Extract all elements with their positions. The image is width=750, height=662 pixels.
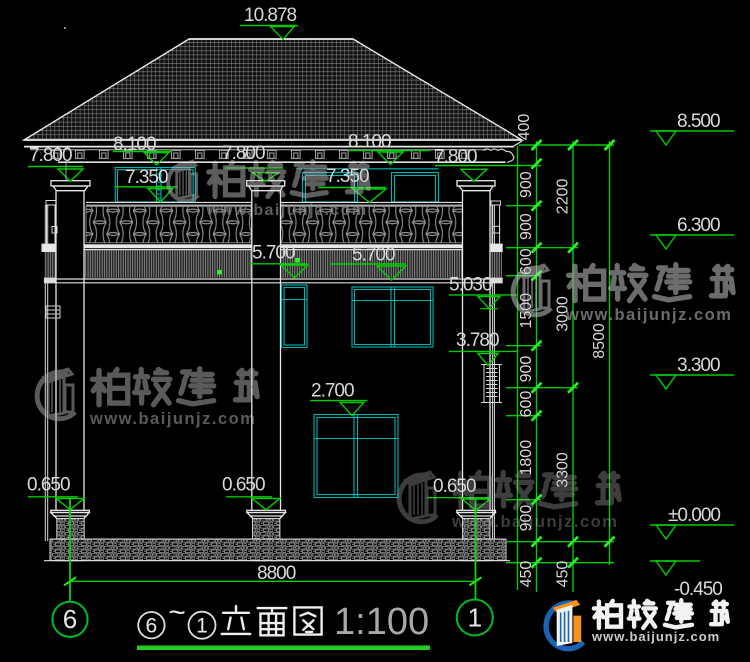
svg-text:900: 900: [518, 171, 535, 198]
svg-text:5.700: 5.700: [352, 245, 395, 266]
svg-text:±0.000: ±0.000: [668, 505, 720, 526]
svg-text:www.baijunjz.com: www.baijunjz.com: [591, 629, 720, 644]
svg-text:450: 450: [518, 561, 535, 588]
svg-text:8.100: 8.100: [348, 132, 391, 153]
svg-text:5.030: 5.030: [449, 275, 492, 296]
svg-text:7.800: 7.800: [222, 143, 265, 164]
svg-text:0.650: 0.650: [222, 475, 265, 496]
svg-text:3.780: 3.780: [456, 330, 499, 351]
svg-text:0.650: 0.650: [27, 475, 70, 496]
svg-text:900: 900: [518, 356, 535, 383]
svg-text:7.350: 7.350: [125, 167, 168, 188]
svg-text:600: 600: [518, 391, 535, 418]
svg-text:www.baijunjz.com: www.baijunjz.com: [451, 513, 618, 531]
svg-text:6.300: 6.300: [677, 215, 720, 236]
svg-text:www.baijunjz.com: www.baijunjz.com: [565, 306, 732, 324]
svg-text:2200: 2200: [555, 179, 572, 215]
svg-text:8500: 8500: [591, 323, 608, 359]
svg-text:www.baijunjz.com: www.baijunjz.com: [89, 410, 256, 428]
svg-text:2.700: 2.700: [311, 381, 354, 402]
svg-text:~: ~: [168, 596, 186, 629]
svg-text:1: 1: [468, 603, 482, 633]
svg-text:7.800: 7.800: [29, 145, 72, 166]
svg-text:1:100: 1:100: [334, 601, 429, 643]
svg-text:5.700: 5.700: [252, 243, 295, 264]
svg-text:400: 400: [516, 114, 533, 141]
svg-text:www.baijunjz.com: www.baijunjz.com: [205, 202, 367, 219]
svg-text:6: 6: [63, 604, 77, 634]
svg-text:450: 450: [555, 561, 572, 588]
svg-text:-0.450: -0.450: [674, 579, 722, 600]
svg-text:900: 900: [518, 213, 535, 240]
svg-text:1: 1: [196, 615, 208, 638]
svg-text:7.800: 7.800: [434, 147, 477, 168]
svg-text:8.500: 8.500: [677, 111, 720, 132]
svg-text:6: 6: [146, 615, 158, 638]
svg-text:3.300: 3.300: [677, 355, 720, 376]
svg-text:10.878: 10.878: [244, 5, 297, 26]
